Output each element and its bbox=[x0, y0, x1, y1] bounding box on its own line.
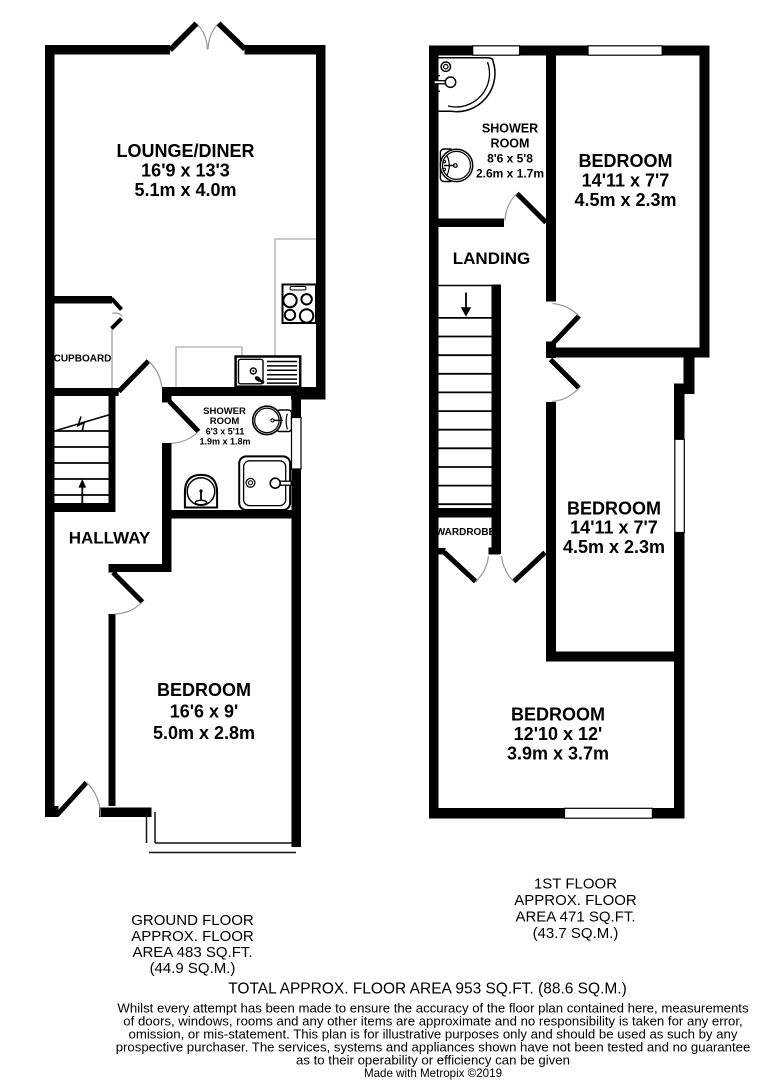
svg-text:1.9m x 1.8m: 1.9m x 1.8m bbox=[199, 437, 250, 447]
svg-text:ROOM: ROOM bbox=[491, 137, 530, 151]
svg-text:BEDROOM: BEDROOM bbox=[567, 499, 661, 519]
svg-text:TOTAL APPROX. FLOOR AREA 953 S: TOTAL APPROX. FLOOR AREA 953 SQ.FT. (88.… bbox=[228, 981, 627, 998]
svg-text:2.6m x 1.7m: 2.6m x 1.7m bbox=[476, 167, 544, 181]
svg-text:1ST FLOOR: 1ST FLOOR bbox=[534, 876, 617, 893]
svg-text:14'11 x 7'7: 14'11 x 7'7 bbox=[570, 518, 658, 538]
svg-text:(44.9 SQ.M.): (44.9 SQ.M.) bbox=[150, 960, 236, 977]
svg-text:AREA 471 SQ.FT.: AREA 471 SQ.FT. bbox=[515, 909, 635, 926]
svg-text:8'6 x 5'8: 8'6 x 5'8 bbox=[487, 152, 533, 166]
svg-text:14'11 x 7'7: 14'11 x 7'7 bbox=[582, 171, 670, 191]
svg-text:GROUND FLOOR: GROUND FLOOR bbox=[131, 912, 254, 929]
svg-text:4.5m x 2.3m: 4.5m x 2.3m bbox=[563, 537, 665, 557]
svg-text:APPROX. FLOOR: APPROX. FLOOR bbox=[131, 928, 254, 945]
svg-text:BEDROOM: BEDROOM bbox=[157, 680, 251, 700]
svg-text:BEDROOM: BEDROOM bbox=[511, 705, 605, 725]
svg-text:5.0m x 2.8m: 5.0m x 2.8m bbox=[153, 723, 255, 743]
svg-text:SHOWER: SHOWER bbox=[482, 122, 538, 136]
svg-text:16'9 x 13'3: 16'9 x 13'3 bbox=[141, 161, 230, 181]
svg-text:LOUNGE/DINER: LOUNGE/DINER bbox=[116, 141, 254, 161]
svg-text:APPROX. FLOOR: APPROX. FLOOR bbox=[514, 892, 637, 909]
svg-text:AREA 483 SQ.FT.: AREA 483 SQ.FT. bbox=[132, 944, 252, 961]
svg-text:4.5m x 2.3m: 4.5m x 2.3m bbox=[574, 190, 676, 210]
svg-text:5.1m x 4.0m: 5.1m x 4.0m bbox=[134, 180, 236, 200]
svg-text:(43.7 SQ.M.): (43.7 SQ.M.) bbox=[533, 925, 619, 942]
svg-text:LANDING: LANDING bbox=[453, 249, 530, 268]
svg-text:Made with Metropix ©2019: Made with Metropix ©2019 bbox=[364, 1067, 502, 1080]
svg-text:as to their operability or eff: as to their operability or efficiency ca… bbox=[296, 1053, 570, 1068]
svg-text:CUPBOARD: CUPBOARD bbox=[54, 354, 112, 365]
svg-text:BEDROOM: BEDROOM bbox=[579, 151, 673, 171]
svg-text:ROOM: ROOM bbox=[210, 416, 240, 427]
svg-text:3.9m x 3.7m: 3.9m x 3.7m bbox=[507, 744, 609, 764]
svg-text:16'6 x 9': 16'6 x 9' bbox=[170, 702, 239, 722]
svg-text:12'10 x 12': 12'10 x 12' bbox=[514, 724, 603, 744]
svg-text:HALLWAY: HALLWAY bbox=[69, 529, 151, 548]
svg-text:6'3 x 5'11: 6'3 x 5'11 bbox=[206, 427, 245, 437]
svg-text:WARDROBE: WARDROBE bbox=[436, 527, 496, 538]
